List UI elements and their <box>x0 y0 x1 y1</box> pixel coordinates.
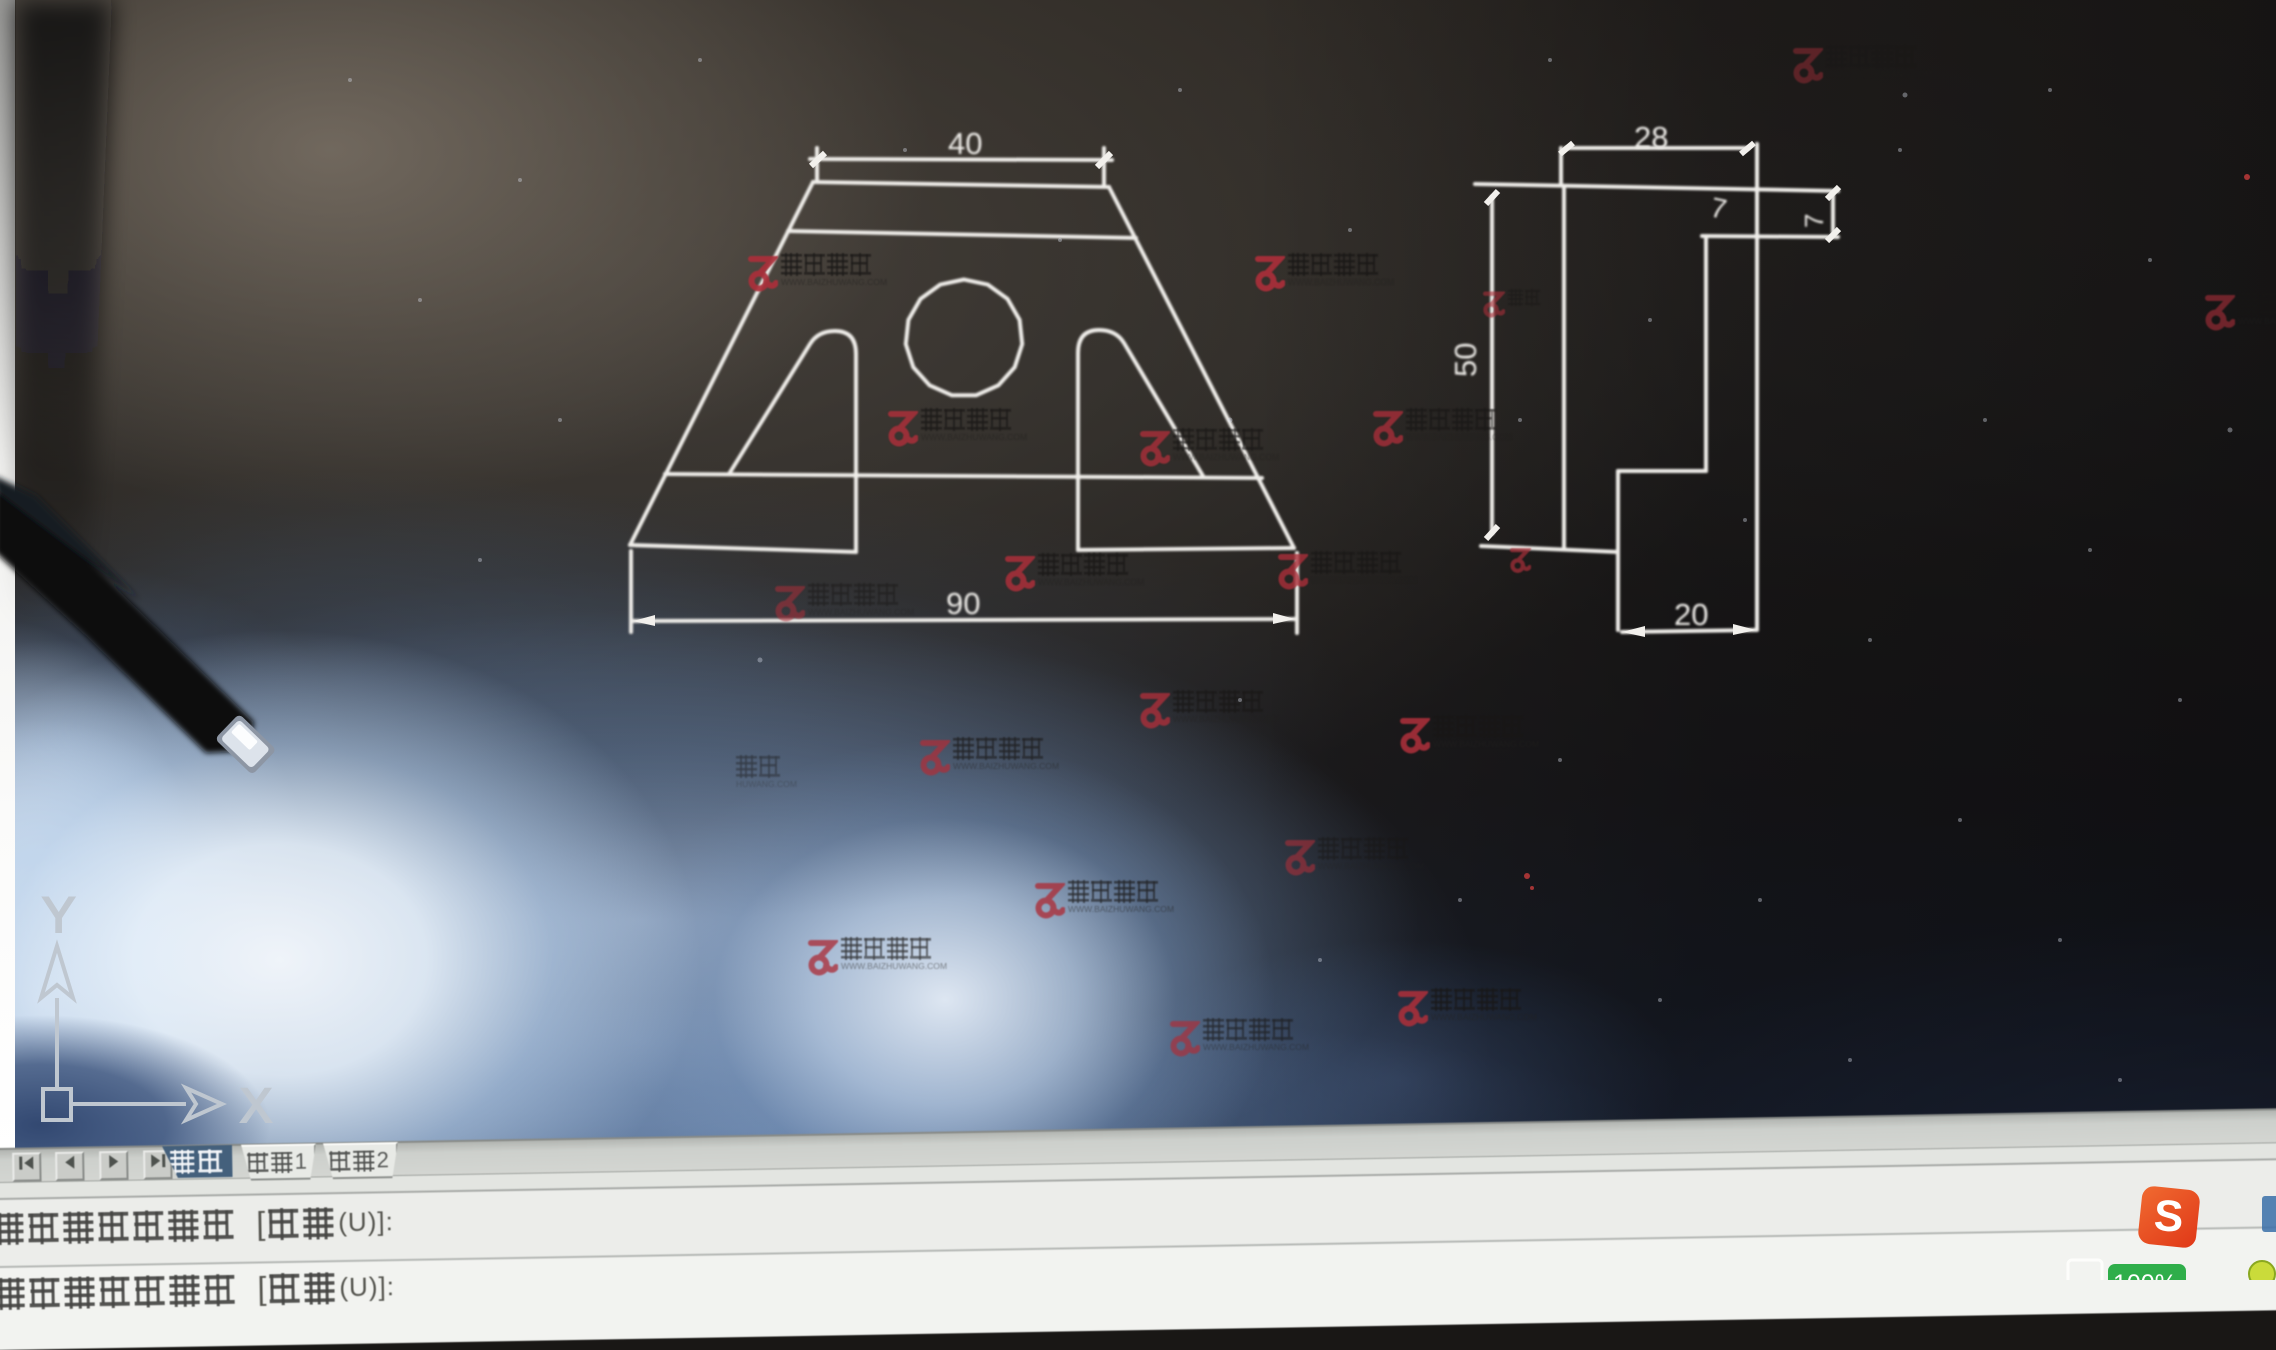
svg-text:100%: 100% <box>2113 1270 2177 1280</box>
